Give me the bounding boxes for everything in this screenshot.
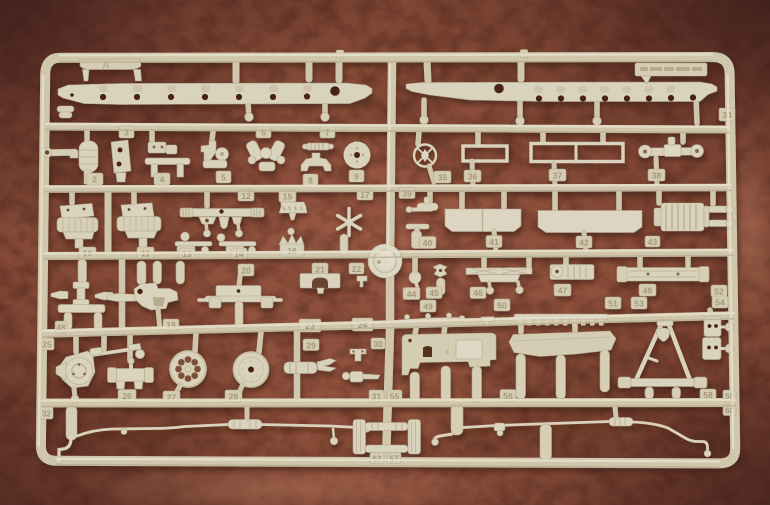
svg-text:39: 39: [402, 189, 412, 199]
svg-text:43: 43: [648, 237, 658, 247]
svg-text:32: 32: [42, 410, 51, 419]
svg-text:9: 9: [354, 172, 359, 182]
svg-text:37: 37: [553, 171, 563, 181]
svg-text:47: 47: [558, 286, 568, 296]
svg-text:8: 8: [308, 176, 313, 186]
svg-text:40: 40: [423, 238, 433, 248]
svg-text:4: 4: [160, 175, 165, 185]
svg-text:46: 46: [473, 288, 483, 298]
svg-text:52: 52: [714, 287, 724, 297]
svg-text:6: 6: [261, 128, 266, 138]
svg-text:20: 20: [241, 266, 251, 276]
svg-text:30: 30: [373, 339, 383, 349]
svg-text:16: 16: [287, 246, 297, 256]
svg-text:36: 36: [468, 172, 478, 182]
svg-text:5: 5: [221, 173, 226, 183]
svg-text:7: 7: [325, 128, 330, 138]
svg-text:49: 49: [423, 302, 433, 312]
svg-text:12: 12: [241, 191, 251, 201]
svg-text:50: 50: [497, 301, 507, 311]
svg-text:58: 58: [703, 390, 713, 400]
svg-text:57: 57: [390, 455, 399, 464]
svg-text:38: 38: [652, 171, 662, 181]
svg-text:21: 21: [315, 265, 325, 275]
svg-text:48: 48: [643, 286, 653, 296]
svg-text:51: 51: [608, 299, 618, 309]
svg-text:15: 15: [283, 192, 293, 202]
svg-text:53: 53: [634, 299, 644, 309]
svg-text:25: 25: [42, 340, 52, 350]
svg-text:35: 35: [438, 173, 448, 183]
svg-text:22: 22: [352, 264, 362, 274]
svg-text:45: 45: [429, 288, 439, 298]
svg-text:54: 54: [715, 298, 725, 308]
svg-text:44: 44: [407, 289, 417, 299]
svg-text:41: 41: [489, 237, 499, 247]
svg-text:29: 29: [306, 341, 316, 351]
svg-text:42: 42: [579, 238, 589, 248]
svg-text:2: 2: [92, 175, 97, 185]
svg-text:3: 3: [124, 128, 129, 138]
